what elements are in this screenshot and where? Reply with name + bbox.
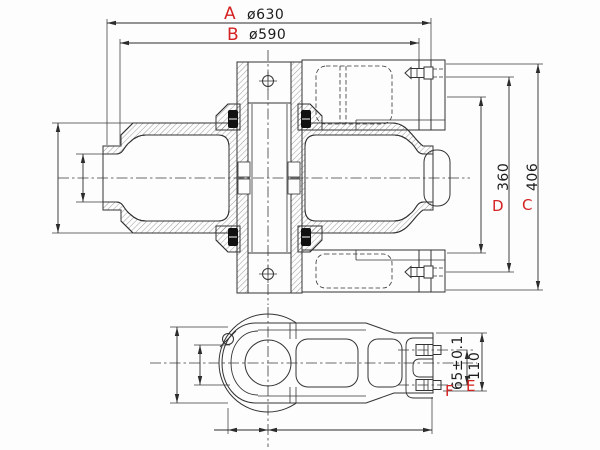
dim-label-C: C (522, 198, 532, 213)
dim-value-D: 360 (497, 163, 511, 191)
dim-value-A: ø630 (247, 8, 284, 22)
dim-label-D: D (492, 199, 504, 214)
dim-label-E: E (466, 379, 475, 394)
dim-value-E: 110 (468, 352, 482, 380)
dim-value-C: 406 (526, 163, 540, 191)
center-column (237, 62, 302, 293)
dim-label-B: B (227, 27, 239, 44)
dim-label-F: F (445, 384, 454, 399)
front-section-view (103, 60, 450, 293)
dim-value-B: ø590 (249, 28, 286, 42)
cad-drawing (0, 0, 600, 450)
dim-label-A: A (224, 6, 236, 23)
drawing-sheet: A ø630 B ø590 406 C 360 D 110 E 65±0.1 F (0, 0, 600, 450)
